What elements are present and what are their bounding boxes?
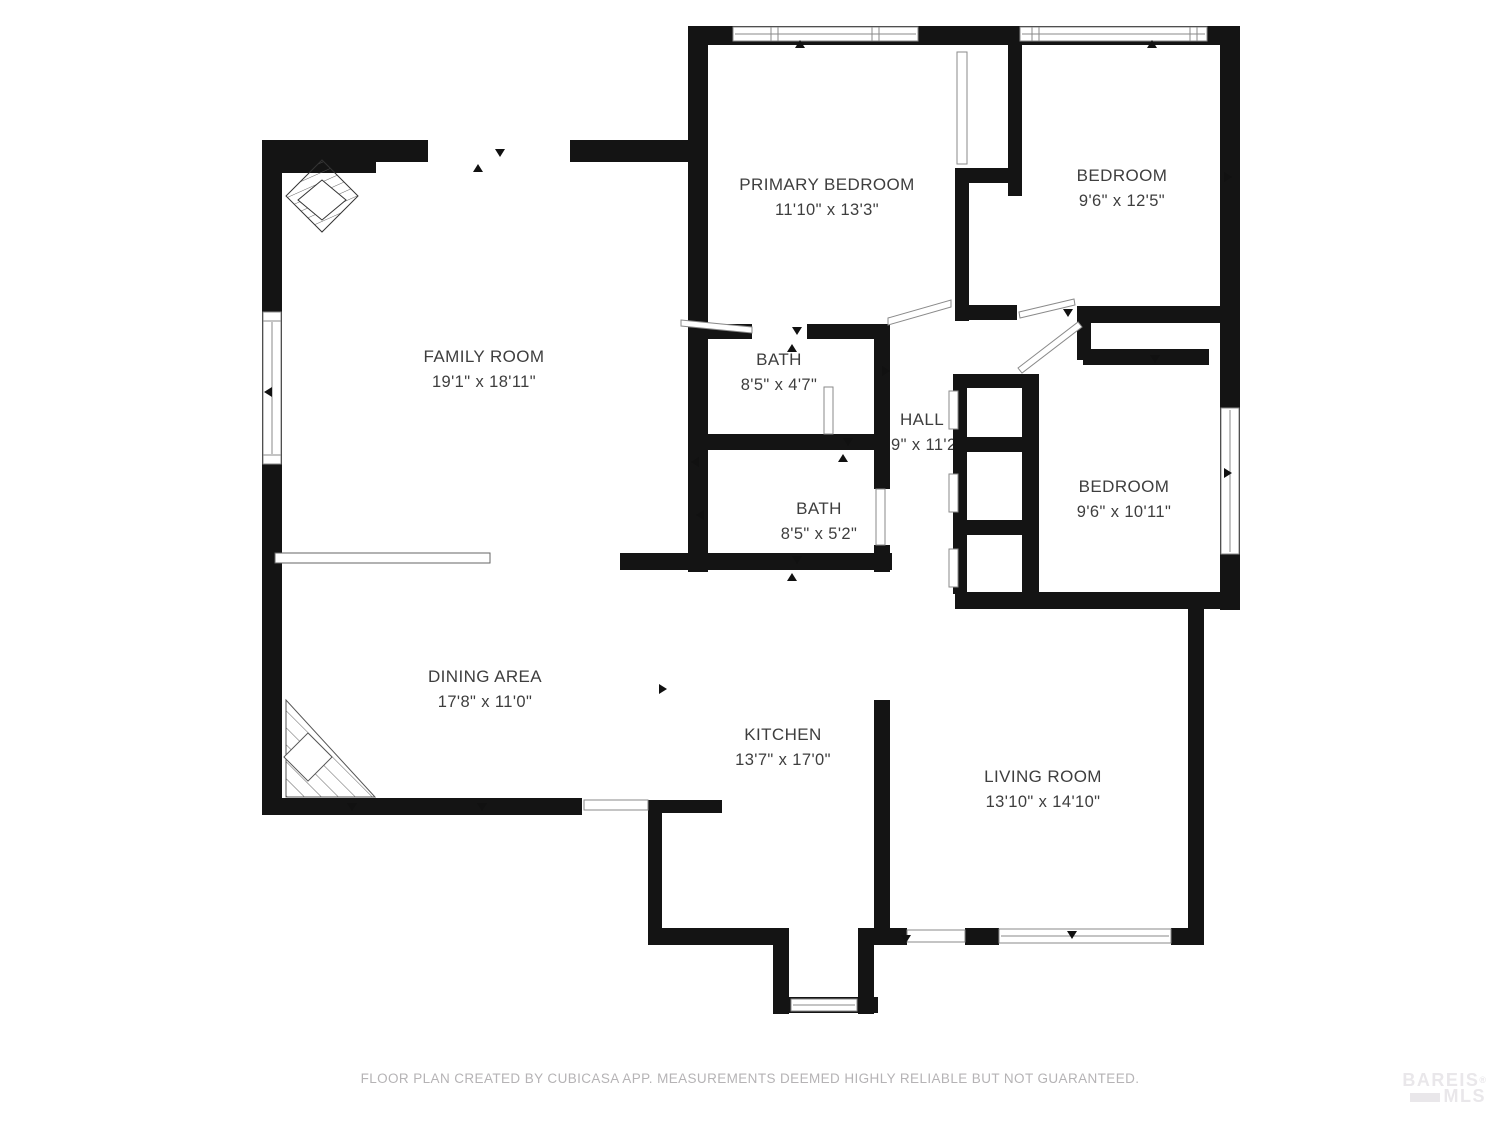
bareis-mls-logo: BAREIS® MLS [1402, 1072, 1486, 1104]
footer-disclaimer: FLOOR PLAN CREATED BY CUBICASA APP. MEAS… [361, 1071, 1140, 1086]
watermark-bar [1410, 1093, 1440, 1102]
registered-mark: ® [1479, 1075, 1486, 1085]
watermark-line2: MLS [1402, 1088, 1486, 1104]
floor-plan-page: FAMILY ROOM 19'1" x 18'11" PRIMARY BEDRO… [0, 0, 1500, 1125]
overlay-layer: FLOOR PLAN CREATED BY CUBICASA APP. MEAS… [0, 0, 1500, 1125]
